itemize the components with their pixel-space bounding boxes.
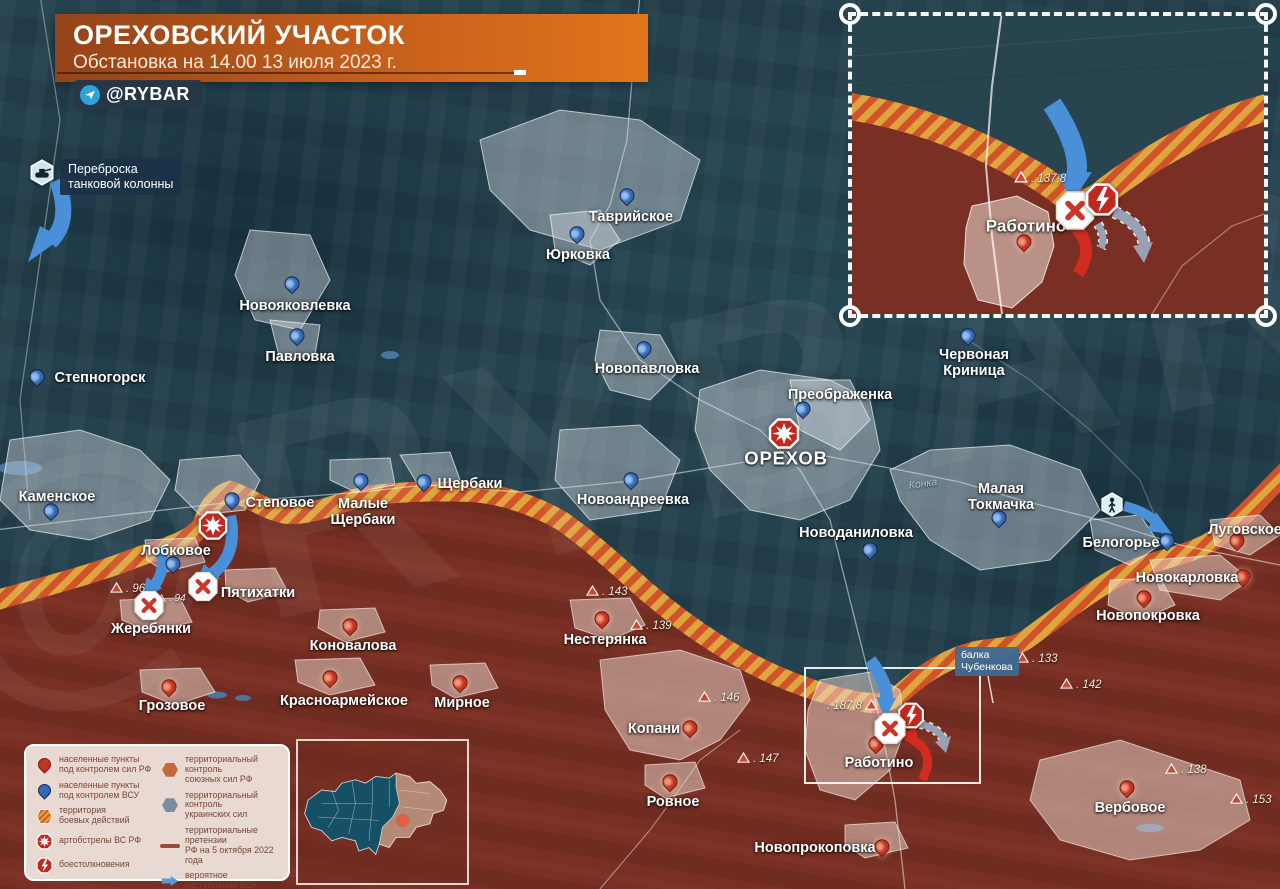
town-label: Мирное <box>434 695 490 711</box>
arrow-ua-icon <box>160 872 180 889</box>
elevation-marker: . 143 <box>586 583 628 601</box>
town-label: Работино <box>845 755 914 771</box>
town-label: Пятихатки <box>221 585 295 601</box>
town-label: Копани <box>628 721 680 737</box>
tank-transfer-label: Переброска танковой колонны <box>60 159 181 195</box>
ukraine-minimap <box>296 739 469 885</box>
legend-item-label: территориальный контроль союзных сил РФ <box>185 755 280 785</box>
town-label: Коновалова <box>310 638 397 654</box>
elevation-value: . 147 <box>753 753 779 765</box>
town-label: Червоная Криница <box>939 347 1009 379</box>
elevation-triangle-icon <box>698 689 711 707</box>
tank-icon <box>29 159 56 191</box>
legend-item: артобстрелы ВС РФ <box>34 832 154 850</box>
town-label: Степногорск <box>55 370 146 386</box>
inset-map-canvas: . 137,8 Работино <box>852 16 1264 314</box>
legend-item: боестолкновения <box>34 856 154 874</box>
clash-icon <box>1085 183 1119 222</box>
town-label: Ровное <box>647 794 700 810</box>
town-label: Новоданиловка <box>799 525 913 541</box>
town-label: Малые Щербаки <box>331 496 396 528</box>
elevation-value: . 143 <box>602 586 628 598</box>
soldier-icon <box>1100 492 1125 522</box>
artillery-icon <box>768 418 800 455</box>
elevation-marker: . 187,8 <box>827 697 878 715</box>
town-label: Новокарловка <box>1136 570 1239 586</box>
elevation-value: . 146 <box>714 692 740 704</box>
legend-item-label: населенные пункты под контролем ВСУ <box>59 781 139 801</box>
town-label: Вербовое <box>1095 800 1166 816</box>
legend-item: населенные пункты под контролем сил РФ <box>34 755 154 775</box>
elevation-marker: . 137,8 <box>1014 170 1066 188</box>
legend-item-label: территория боевых действий <box>59 806 130 826</box>
hex-battle-icon <box>34 807 54 825</box>
failed-icon <box>873 712 907 751</box>
legend-item: территориальные претензии РФ на 5 октябр… <box>160 826 280 865</box>
pin-ru-icon <box>34 756 54 774</box>
failed-icon <box>133 590 165 627</box>
rybar-badge-label: @RYBAR <box>106 84 190 105</box>
legend-item-label: территориальные претензии РФ на 5 октябр… <box>185 826 280 865</box>
town-label: Красноармейское <box>280 693 408 709</box>
claim-line-icon <box>160 837 180 855</box>
legend-item-label: территориальный контроль украинских сил <box>185 791 280 821</box>
legend-right-column: территориальный контроль союзных сил РФт… <box>160 755 280 873</box>
hex-ru-icon <box>160 761 180 779</box>
elevation-marker: . 153 <box>1230 791 1272 809</box>
pin-ua-icon <box>34 782 54 800</box>
elevation-triangle-icon <box>1230 791 1243 809</box>
artillery-icon <box>34 832 54 850</box>
elevation-marker: . 147 <box>737 750 779 768</box>
elevation-value: . 137,8 <box>1031 173 1066 185</box>
legend-item-label: вероятное наступление ВСУ <box>185 871 257 889</box>
elevation-marker: . 133 <box>1016 650 1058 668</box>
inset-corner-ring <box>1255 3 1277 25</box>
legend: населенные пункты под контролем сил РФна… <box>24 744 290 881</box>
town-label: Грозовое <box>139 698 206 714</box>
inset-corner-ring <box>839 305 861 327</box>
town-label: Новопокровка <box>1096 608 1200 624</box>
inset-corner-ring <box>1255 305 1277 327</box>
town-label: Щербаки <box>438 476 503 492</box>
elevation-triangle-icon <box>586 583 599 601</box>
town-label: Таврийское <box>589 209 673 225</box>
banner-underline <box>57 72 519 74</box>
elevation-triangle-icon <box>737 750 750 768</box>
hex-ua-icon <box>160 796 180 814</box>
legend-item: территориальный контроль союзных сил РФ <box>160 755 280 785</box>
town-label: Преображенка <box>788 387 892 403</box>
elevation-marker: . 138 <box>1165 761 1207 779</box>
town-label: Белогорье <box>1083 535 1160 551</box>
legend-item: территория боевых действий <box>34 806 154 826</box>
rybar-badge: @RYBAR <box>74 80 202 109</box>
town-label: Юрковка <box>546 247 610 263</box>
banner-tick <box>514 70 526 75</box>
inset-map: . 137,8 Работино <box>848 12 1268 318</box>
town-label: Луговское <box>1208 522 1280 538</box>
elevation-triangle-icon <box>1165 761 1178 779</box>
legend-item-label: боестолкновения <box>59 860 130 870</box>
legend-item-label: артобстрелы ВС РФ <box>59 836 141 846</box>
map-stage: @RYBAR ОРЕХОВСКИЙ УЧАСТОК Обстановка на … <box>0 0 1280 889</box>
town-label: Новопрокоповка <box>754 840 875 856</box>
elevation-value: . 94 <box>169 593 186 604</box>
failed-icon <box>187 571 219 608</box>
town-label: Новоандреевка <box>577 492 689 508</box>
elevation-value: . 142 <box>1076 679 1102 691</box>
town-label: Новопавловка <box>595 361 700 377</box>
legend-item-label: населенные пункты под контролем сил РФ <box>59 755 151 775</box>
page-title: ОРЕХОВСКИЙ УЧАСТОК <box>73 21 648 49</box>
legend-item: территориальный контроль украинских сил <box>160 791 280 821</box>
elevation-value: . 133 <box>1032 653 1058 665</box>
elevation-marker: . 146 <box>698 689 740 707</box>
legend-item: вероятное наступление ВСУ <box>160 871 280 889</box>
elevation-triangle-icon <box>1060 676 1073 694</box>
inset-corner-ring <box>839 3 861 25</box>
elevation-marker: . 142 <box>1060 676 1102 694</box>
legend-item: населенные пункты под контролем ВСУ <box>34 781 154 801</box>
elevation-triangle-icon <box>110 580 123 598</box>
town-label: Малая Токмачка <box>968 481 1034 513</box>
clash-icon <box>34 856 54 874</box>
town-label: Каменское <box>19 489 96 505</box>
elevation-value: . 187,8 <box>827 700 862 712</box>
telegram-icon <box>80 85 100 105</box>
elevation-value: . 138 <box>1181 764 1207 776</box>
elevation-value: . 153 <box>1246 794 1272 806</box>
town-label: Нестерянка <box>564 632 647 648</box>
legend-left-column: населенные пункты под контролем сил РФна… <box>34 755 154 873</box>
artillery-icon <box>198 511 228 546</box>
elevation-value: . 139 <box>646 620 672 632</box>
town-label: Павловка <box>265 349 334 365</box>
town-label: Новояковлевка <box>239 298 350 314</box>
elevation-triangle-icon <box>1014 170 1028 188</box>
town-label: Степовое <box>246 495 315 511</box>
balka-label: балка Чубенкова <box>955 647 1019 676</box>
